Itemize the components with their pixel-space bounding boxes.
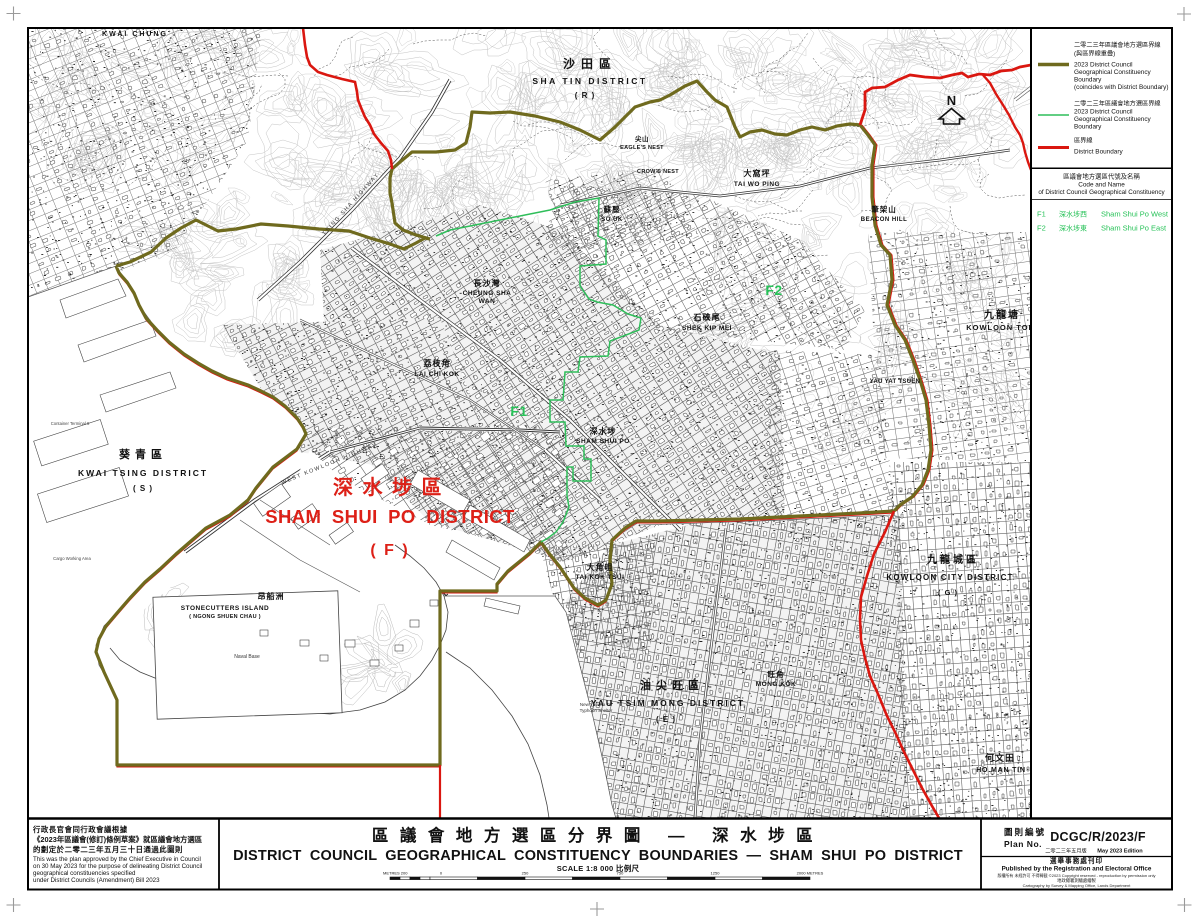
svg-text:on 30 May 2023 for the purpose: on 30 May 2023 for the purpose of deline… — [33, 863, 202, 870]
svg-text:(與區界線重疊): (與區界線重疊) — [1074, 50, 1115, 58]
svg-text:KWAI CHUNG: KWAI CHUNG — [102, 31, 168, 38]
svg-text:( S ): ( S ) — [133, 484, 153, 493]
svg-text:何文田: 何文田 — [985, 752, 1015, 763]
svg-text:葵青區: 葵青區 — [118, 447, 167, 461]
svg-text:SHAM SHUI PO DISTRICT: SHAM SHUI PO DISTRICT — [265, 506, 515, 527]
svg-text:KOWLOON CITY DISTRICT: KOWLOON CITY DISTRICT — [886, 573, 1013, 582]
svg-text:行政長官會同行政會議根據: 行政長官會同行政會議根據 — [32, 825, 128, 834]
svg-text:Boundary: Boundary — [1074, 124, 1102, 131]
svg-text:SHA TIN DISTRICT: SHA TIN DISTRICT — [532, 76, 647, 86]
svg-text:深水埗: 深水埗 — [590, 426, 617, 436]
svg-text:TAI WO PING: TAI WO PING — [734, 181, 780, 188]
svg-text:CROW'S NEST: CROW'S NEST — [637, 169, 679, 175]
svg-text:METRES 200: METRES 200 — [383, 871, 408, 876]
svg-text:STONECUTTERS ISLAND: STONECUTTERS ISLAND — [181, 605, 269, 612]
svg-text:區議會地方選區分界圖 — 深水埗區: 區議會地方選區分界圖 — 深水埗區 — [372, 825, 824, 845]
svg-text:District Boundary: District Boundary — [1074, 149, 1123, 156]
svg-text:DCGC/R/2023/F: DCGC/R/2023/F — [1050, 830, 1146, 844]
svg-text:May 2023 Edition: May 2023 Edition — [1097, 849, 1143, 855]
svg-text:WAN: WAN — [479, 298, 496, 305]
svg-text:大窩坪: 大窩坪 — [744, 168, 771, 178]
svg-text:二零二三年區議會地方選區界線: 二零二三年區議會地方選區界線 — [1074, 100, 1161, 108]
svg-text:HO MAN TIN: HO MAN TIN — [976, 767, 1026, 774]
svg-text:區界線: 區界線 — [1074, 137, 1093, 145]
svg-text:MONG KOK: MONG KOK — [756, 681, 796, 688]
svg-text:石硤尾: 石硤尾 — [693, 312, 721, 322]
svg-text:區議會地方選區代號及名稱: 區議會地方選區代號及名稱 — [1063, 172, 1140, 181]
svg-text:SO UK: SO UK — [601, 217, 623, 223]
svg-text:筆架山: 筆架山 — [871, 204, 897, 214]
svg-text:SCALE 1:8 000 比例尺: SCALE 1:8 000 比例尺 — [557, 863, 640, 873]
svg-text:(coincides with District Bound: (coincides with District Boundary) — [1074, 84, 1168, 91]
svg-text:Typhoon Shelter: Typhoon Shelter — [580, 708, 613, 713]
svg-text:選舉事務處刊印: 選舉事務處刊印 — [1050, 856, 1103, 865]
svg-text:《2023年區議會(修訂)條例草案》就區議會地方選區: 《2023年區議會(修訂)條例草案》就區議會地方選區 — [33, 835, 203, 844]
svg-text:F2: F2 — [1037, 224, 1046, 233]
svg-text:SHEK KIP MEI: SHEK KIP MEI — [682, 325, 732, 332]
svg-text:深水埗東: 深水埗東 — [1059, 224, 1087, 233]
svg-text:LAI CHI KOK: LAI CHI KOK — [414, 371, 459, 378]
svg-text:under District Councils (Amend: under District Councils (Amendment) Bill… — [33, 877, 160, 884]
svg-text:geographical constituencies sp: geographical constituencies specified — [33, 870, 136, 877]
svg-text:沙田區: 沙田區 — [563, 57, 617, 71]
svg-text:F1: F1 — [1037, 210, 1046, 219]
svg-text:F1: F1 — [510, 403, 527, 419]
svg-text:長沙灣: 長沙灣 — [474, 278, 501, 288]
svg-text:N: N — [947, 93, 956, 108]
svg-text:Geographical Constituency: Geographical Constituency — [1074, 116, 1152, 123]
svg-text:Code and Name: Code and Name — [1078, 182, 1125, 189]
svg-text:九龍塘: 九龍塘 — [983, 308, 1020, 321]
svg-text:( R ): ( R ) — [575, 91, 596, 100]
svg-text:Published by the Registration: Published by the Registration and Electo… — [1002, 866, 1152, 873]
svg-text:CHEUNG SHA: CHEUNG SHA — [463, 290, 512, 297]
svg-text:YAU TSIM MONG DISTRICT: YAU TSIM MONG DISTRICT — [591, 698, 745, 708]
svg-text:750: 750 — [617, 871, 624, 876]
svg-text:250: 250 — [522, 871, 529, 876]
svg-text:深水埗西: 深水埗西 — [1059, 210, 1087, 219]
svg-text:EAGLE'S NEST: EAGLE'S NEST — [620, 145, 664, 151]
svg-text:油尖旺區: 油尖旺區 — [640, 678, 704, 692]
svg-text:Naval Base: Naval Base — [234, 654, 260, 660]
svg-text:Cargo Working Area: Cargo Working Area — [53, 556, 91, 561]
svg-text:旺角: 旺角 — [768, 669, 785, 679]
svg-text:KWAI TSING DISTRICT: KWAI TSING DISTRICT — [78, 468, 208, 478]
svg-text:YAU YAT TSUEN: YAU YAT TSUEN — [870, 379, 921, 385]
svg-text:的劃定於二零二三年五月三十日通過此圖則: 的劃定於二零二三年五月三十日通過此圖則 — [33, 845, 183, 854]
svg-text:二零二三年區議會地方選區界線: 二零二三年區議會地方選區界線 — [1074, 41, 1161, 49]
svg-text:荔枝角: 荔枝角 — [423, 358, 451, 368]
svg-text:F2: F2 — [765, 282, 782, 298]
svg-text:Plan No.: Plan No. — [1004, 839, 1042, 849]
svg-text:蘇屋: 蘇屋 — [603, 204, 621, 214]
svg-text:九龍城區: 九龍城區 — [926, 553, 979, 566]
svg-text:( G ): ( G ) — [938, 588, 958, 597]
svg-text:Boundary: Boundary — [1074, 77, 1102, 84]
svg-text:BEACON HILL: BEACON HILL — [861, 217, 908, 223]
svg-text:Sham Shui Po East: Sham Shui Po East — [1101, 224, 1167, 233]
svg-text:Geographical Constituency: Geographical Constituency — [1074, 69, 1152, 76]
svg-text:Container Terminal 8: Container Terminal 8 — [51, 421, 90, 426]
svg-text:Sham Shui Po West: Sham Shui Po West — [1101, 210, 1169, 219]
svg-text:( E ): ( E ) — [656, 715, 676, 724]
svg-text:二零二三年五月版: 二零二三年五月版 — [1045, 847, 1087, 855]
svg-text:2000 METRES: 2000 METRES — [797, 871, 824, 876]
svg-text:This was the plan approved by: This was the plan approved by the Chief … — [33, 856, 201, 863]
svg-text:( NGONG SHUEN CHAU ): ( NGONG SHUEN CHAU ) — [189, 614, 261, 620]
svg-text:DISTRICT COUNCIL GEOGRAPHICAL: DISTRICT COUNCIL GEOGRAPHICAL CONSTITUEN… — [233, 848, 963, 864]
svg-text:New Yau Ma Tei: New Yau Ma Tei — [580, 702, 612, 707]
svg-text:2023 District Council: 2023 District Council — [1074, 62, 1133, 69]
svg-text:尖山: 尖山 — [635, 134, 649, 143]
svg-text:昂船洲: 昂船洲 — [258, 591, 285, 601]
svg-text:深水埗區: 深水埗區 — [333, 476, 451, 499]
svg-text:TAI KOK TSUI: TAI KOK TSUI — [576, 574, 625, 581]
svg-text:1250: 1250 — [711, 871, 721, 876]
svg-text:2023 District Council: 2023 District Council — [1074, 109, 1133, 116]
svg-text:of District Council Geographic: of District Council Geographical Constit… — [1038, 189, 1165, 196]
svg-text:( F ): ( F ) — [370, 542, 409, 559]
svg-text:Cartography by Survey & Mappin: Cartography by Survey & Mapping Office, … — [1023, 883, 1132, 888]
svg-text:大角咀: 大角咀 — [587, 562, 614, 572]
svg-text:圖則編號: 圖則編號 — [1004, 827, 1046, 837]
svg-text:SHAM SHUI PO: SHAM SHUI PO — [576, 438, 630, 445]
